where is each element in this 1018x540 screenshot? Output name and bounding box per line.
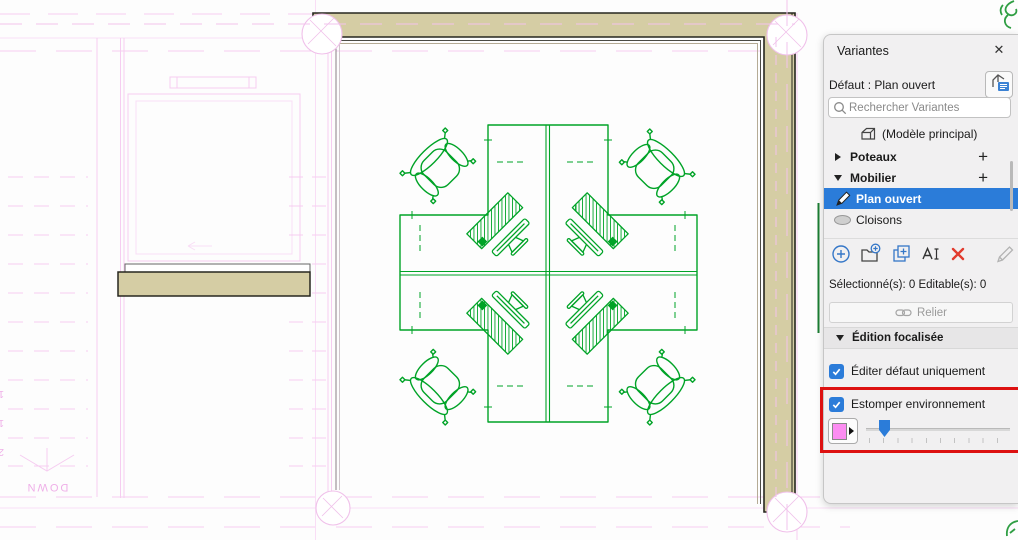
close-icon[interactable]: ✕ [990, 41, 1008, 59]
option-row-cloisons[interactable]: Cloisons [824, 209, 1012, 230]
edit-pencil-icon [993, 242, 1017, 266]
desk-cross-outline [400, 125, 697, 422]
pencil-icon [834, 191, 851, 207]
search-box [828, 97, 1011, 118]
workstation-keyboard-monitor [553, 193, 628, 268]
option-set-mobilier[interactable]: Mobilier + [824, 167, 1012, 188]
svg-text:18: 18 [0, 388, 4, 399]
columns [302, 14, 807, 532]
add-folder-button[interactable] [858, 242, 882, 266]
workstation-cluster[interactable] [400, 125, 697, 425]
add-folder-icon [858, 242, 882, 266]
search-input[interactable] [847, 101, 1006, 115]
focused-editing-header[interactable]: Édition focalisée [824, 327, 1018, 349]
office-chair [400, 128, 477, 205]
list-scrollbar[interactable] [1010, 161, 1013, 211]
duplicate-variant-button[interactable] [889, 242, 913, 266]
main-model-item[interactable]: (Modèle principal) [824, 123, 1012, 144]
grid-lines [0, 0, 795, 540]
highlight-annotation-box [820, 387, 1018, 453]
office-chair [400, 348, 477, 425]
default-option-label: Défaut : Plan ouvert [829, 71, 935, 99]
delete-x-icon [946, 242, 970, 266]
stair-down-label: DOWN [26, 481, 69, 493]
option-row-plan-ouvert[interactable]: Plan ouvert [824, 188, 1018, 209]
edit-default-only-checkbox[interactable]: Éditer défaut uniquement [829, 361, 985, 381]
workstation-keyboard-monitor [553, 279, 628, 354]
search-icon [833, 101, 847, 115]
svg-text:19: 19 [0, 417, 4, 428]
application-window: DOWN 18 19 20 [0, 0, 1018, 540]
chevron-down-icon[interactable] [836, 335, 844, 341]
add-option-button[interactable]: + [978, 150, 988, 164]
checkbox-checked-icon[interactable] [829, 364, 844, 379]
add-option-button[interactable]: + [978, 171, 988, 185]
delete-variant-button[interactable] [946, 242, 970, 266]
transfer-default-button[interactable] [985, 71, 1013, 98]
add-circle-icon [829, 242, 853, 266]
edit-variant-button[interactable] [993, 242, 1017, 266]
roof-with-list-badge-icon [988, 72, 1010, 94]
faded-stair-labels: DOWN 18 19 20 [0, 388, 68, 493]
chevron-right-icon[interactable] [835, 153, 841, 161]
palette-title: Variantes [837, 44, 889, 58]
chain-icon [895, 306, 912, 319]
workstation-keyboard-monitor [467, 279, 542, 354]
workstation-keyboard-monitor [467, 193, 542, 268]
main-model-label: (Modèle principal) [882, 127, 977, 141]
variant-toolbar [824, 238, 1018, 268]
office-chair [618, 348, 695, 425]
rename-text-icon [918, 242, 942, 266]
svg-text:20: 20 [0, 446, 4, 457]
duplicate-plus-icon [889, 242, 913, 266]
option-set-poteaux[interactable]: Poteaux + [824, 146, 1012, 167]
hidden-ellipse-icon [834, 212, 851, 228]
chevron-down-icon[interactable] [834, 175, 842, 181]
add-variant-button[interactable] [829, 242, 853, 266]
link-button[interactable]: Relier [829, 302, 1013, 323]
selection-status: Sélectionné(s): 0 Editable(s): 0 [829, 279, 986, 291]
rename-variant-button[interactable] [918, 242, 942, 266]
building-icon [860, 126, 877, 142]
office-chair [618, 129, 695, 206]
